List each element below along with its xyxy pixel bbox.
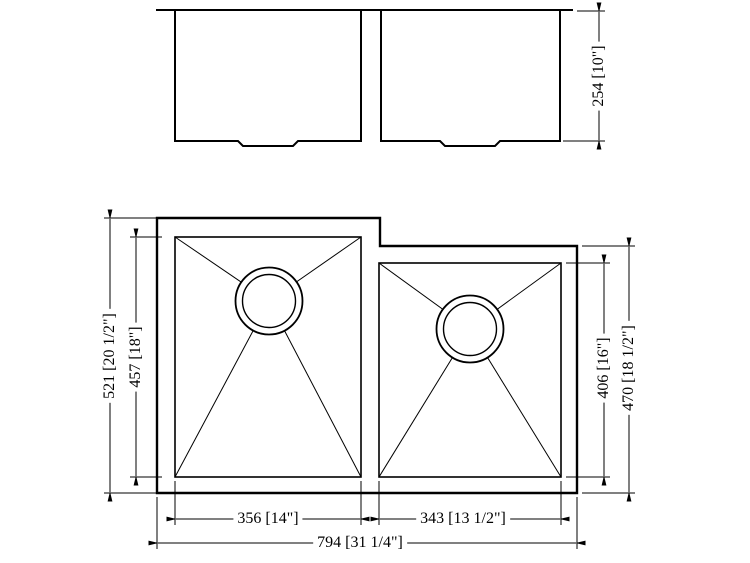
front-elevation-view — [156, 10, 573, 146]
front-left-bowl-outline — [175, 10, 361, 146]
dim-label-overall-height: 521 [20 1/2"] — [101, 309, 119, 403]
dim-label-left-bowl-width: 356 [14"] — [233, 510, 302, 528]
dim-label-right-bowl-width: 343 [13 1/2"] — [416, 510, 510, 528]
front-right-bowl-outline — [381, 10, 560, 146]
drawing-canvas: 254 [10"] 521 [20 1/2"] 457 [18"] 406 [1… — [0, 0, 750, 563]
dim-label-left-bowl-depth: 457 [18"] — [127, 322, 145, 391]
dim-label-depth: 254 [10"] — [590, 41, 608, 110]
left-drain-icon — [236, 268, 303, 335]
sink-technical-drawing — [0, 0, 750, 563]
plan-outer-rim-outline — [157, 218, 577, 493]
dim-label-right-overall-height: 470 [18 1/2"] — [620, 321, 638, 415]
dim-label-overall-width: 794 [31 1/4"] — [313, 534, 407, 552]
plan-view — [157, 218, 577, 493]
dim-label-right-bowl-depth: 406 [16"] — [595, 333, 613, 402]
right-drain-icon — [437, 296, 504, 363]
